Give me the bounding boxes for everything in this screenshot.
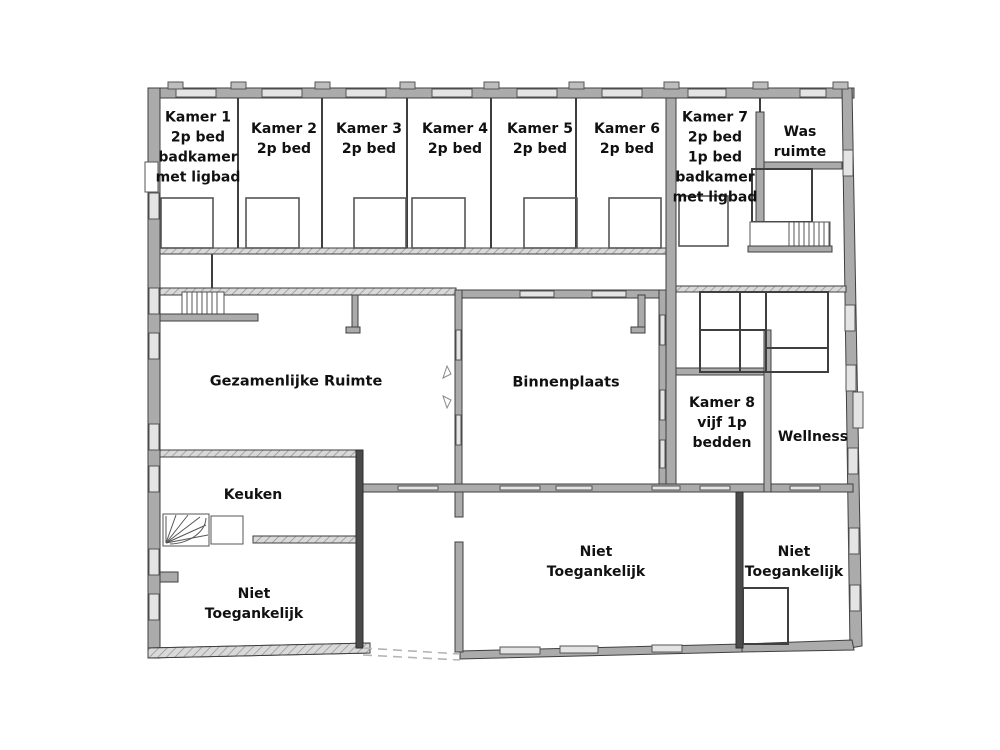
dashed-boundary [363, 648, 460, 660]
interior-thick-walls [160, 98, 853, 652]
interior-dark-walls [356, 450, 743, 648]
staircase-spiral [163, 514, 243, 546]
entrance-door [145, 162, 158, 192]
staircase-top-left [160, 292, 258, 321]
floor-plan: Kamer 1 2p bed badkamer met ligbad Kamer… [0, 0, 1000, 750]
floor-plan-drawing [0, 0, 1000, 750]
ensuite-bathrooms [161, 196, 728, 248]
door-swing-markers [443, 366, 451, 408]
staircase-top-right [748, 222, 832, 252]
exterior-wall-hatch [148, 643, 370, 658]
